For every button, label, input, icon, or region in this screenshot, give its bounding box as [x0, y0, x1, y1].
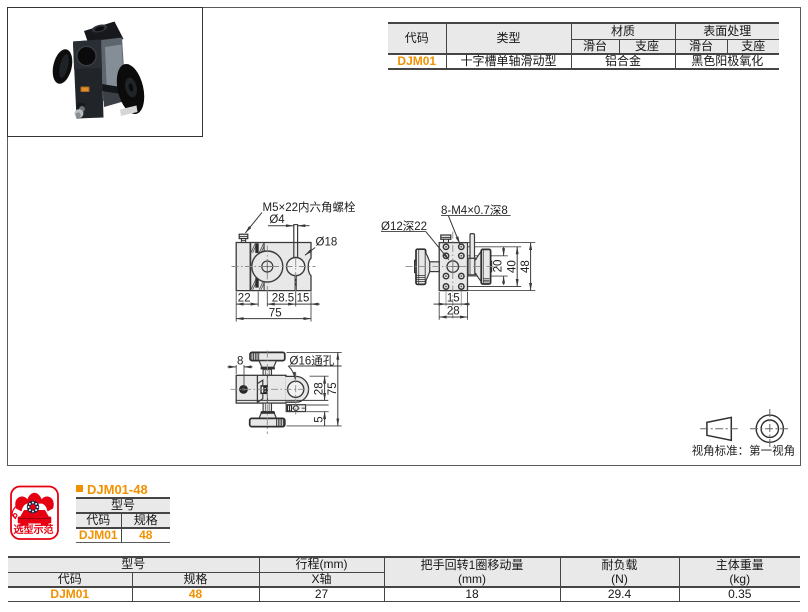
svg-text:28.5: 28.5 [272, 292, 294, 304]
svg-text:15: 15 [297, 292, 310, 304]
svg-text:Ø16通孔: Ø16通孔 [290, 354, 335, 367]
svg-text:视角标准：第一视角: 视角标准：第一视角 [692, 444, 796, 458]
svg-text:Ø12深22: Ø12深22 [381, 219, 427, 233]
svg-text:20: 20 [492, 260, 504, 273]
svg-text:28: 28 [314, 382, 326, 395]
svg-text:15: 15 [447, 292, 460, 304]
svg-text:75: 75 [327, 382, 339, 395]
svg-text:48: 48 [520, 260, 532, 273]
svg-text:8: 8 [237, 356, 243, 368]
svg-text:5: 5 [314, 416, 326, 422]
svg-text:选型示范: 选型示范 [14, 523, 54, 536]
svg-text:Ø18: Ø18 [316, 236, 338, 248]
svg-text:40: 40 [507, 260, 519, 273]
svg-text:M5×22内六角螺栓: M5×22内六角螺栓 [263, 200, 356, 214]
svg-text:Ø4: Ø4 [269, 214, 285, 226]
svg-text:22: 22 [238, 292, 251, 304]
svg-text:28: 28 [447, 306, 460, 318]
svg-text:75: 75 [269, 307, 282, 319]
svg-text:8-M4×0.7深8: 8-M4×0.7深8 [441, 203, 508, 217]
